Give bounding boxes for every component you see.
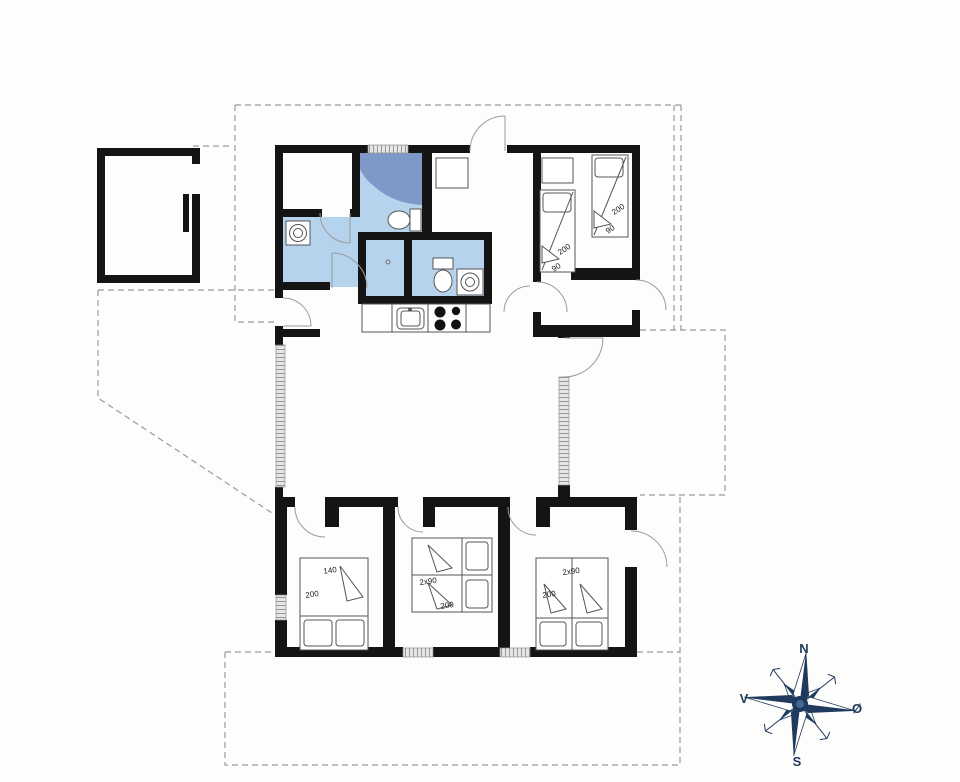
- utility-room-floor: [366, 240, 404, 296]
- floor-plan-canvas: 200 90 200 90 140 200 2x90 200 2x90 200: [0, 0, 960, 782]
- dim-bl-length: 200: [305, 589, 320, 600]
- door-east-exit-bottom: [631, 531, 667, 567]
- window-bathroom-north: [368, 145, 408, 153]
- window-bedroom-se-south: [500, 648, 530, 657]
- compass-label-north: N: [799, 641, 808, 656]
- door-west-exit: [283, 298, 311, 326]
- compass-label-west: V: [740, 691, 749, 706]
- dim-br-length: 200: [542, 589, 557, 600]
- kitchen-sink-icon: [397, 308, 424, 329]
- second-toilet-icon: [433, 258, 453, 292]
- door-east-exit-top: [636, 280, 666, 310]
- dim-bl-width: 140: [323, 565, 338, 576]
- toilet-icon: [388, 209, 421, 231]
- window-living-west: [276, 345, 285, 487]
- bed-top-right-left: [540, 190, 575, 272]
- washing-machine-icon: [286, 221, 310, 245]
- compass-label-east: Ø: [852, 701, 862, 716]
- hall-closet: [436, 158, 468, 188]
- dim-bm-length: 200: [440, 600, 455, 611]
- door-bedroom-se: [508, 507, 536, 535]
- second-washing-machine-icon: [457, 269, 483, 295]
- wardrobe: [542, 158, 573, 183]
- door-living-east: [564, 338, 603, 377]
- window-bedroom-sm-south: [403, 648, 433, 657]
- door-bedroom-sm: [398, 507, 423, 532]
- window-bedroom-sw-west: [276, 595, 286, 620]
- kitchen-counter: [362, 304, 490, 332]
- door-entrance: [470, 116, 505, 151]
- floor-plan-image: 200 90 200 90 140 200 2x90 200 2x90 200: [0, 0, 960, 782]
- door-bedroom-sw: [295, 507, 325, 537]
- door-hall-corridor: [504, 282, 567, 312]
- window-living-east: [559, 377, 569, 485]
- terrace-outline-bottom: [225, 652, 680, 765]
- compass-label-south: S: [793, 754, 802, 769]
- terrace-outline-right: [640, 330, 725, 495]
- compass-rose: N S V Ø: [738, 641, 862, 769]
